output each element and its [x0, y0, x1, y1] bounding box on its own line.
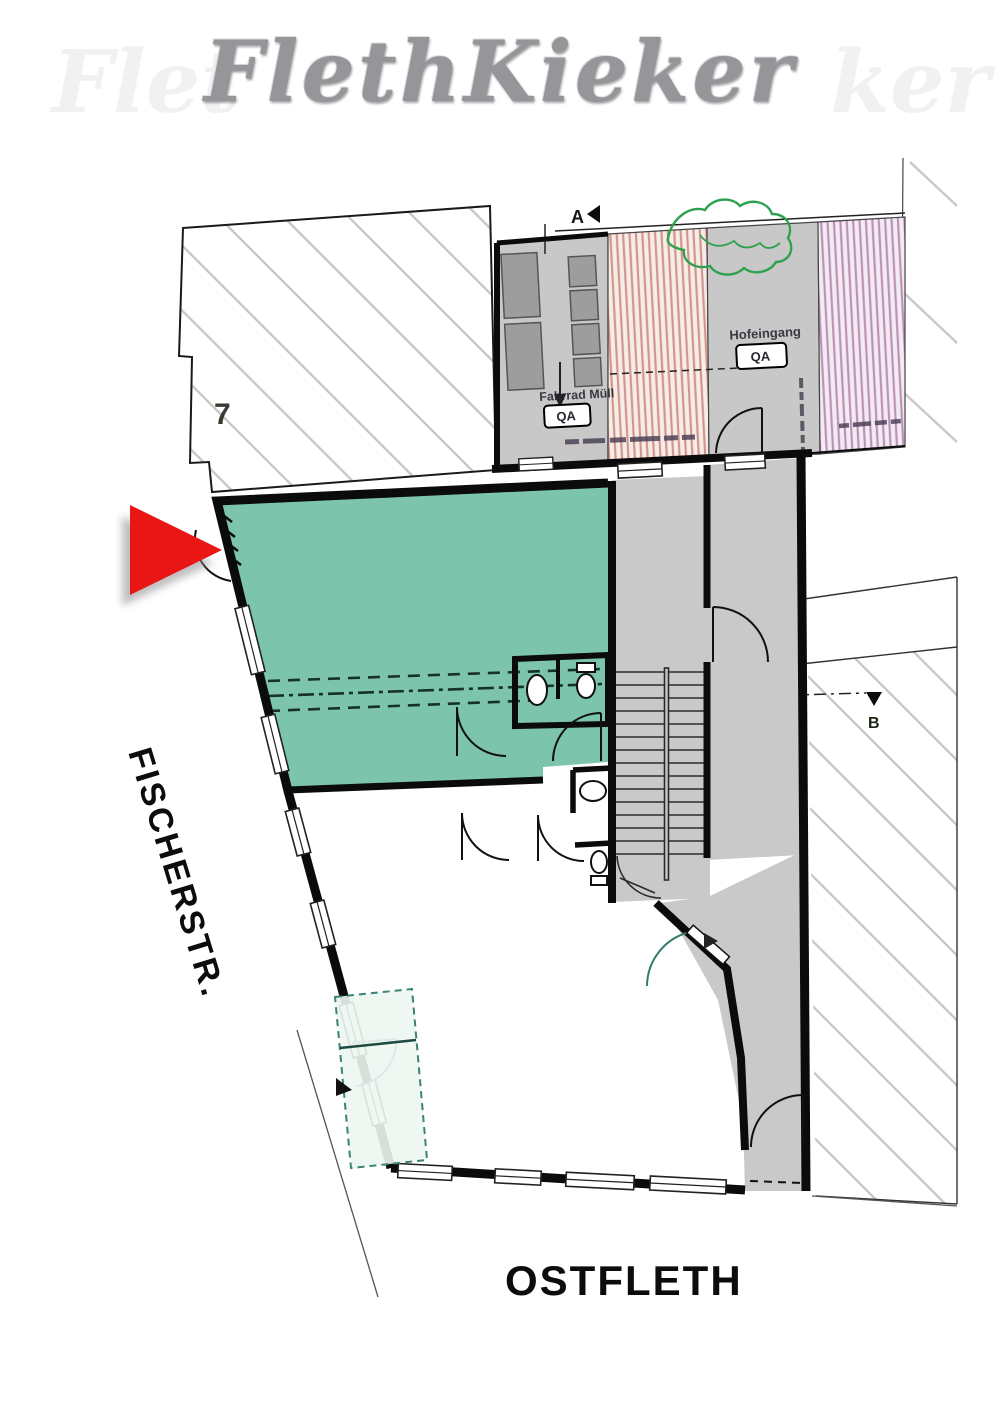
corridor-right: [707, 458, 801, 860]
floor-plan-page: Flet ker FlethKieker 7: [0, 0, 1000, 1414]
lower-wc-door-left: [462, 813, 509, 860]
section-marker-a-triangle-icon: [587, 205, 600, 223]
terrace-pink-striped: [608, 228, 709, 462]
neighbor-parcel-right: [797, 577, 957, 1204]
street-label-ostfleth: OSTFLETH: [505, 1257, 743, 1304]
diagonal-door-arc: [647, 932, 690, 986]
section-marker-a-label: A: [571, 207, 584, 227]
street-label-fischerstr: FISCHERSTR.: [120, 743, 232, 1002]
locator-arrow: [122, 505, 222, 606]
vestibule: [335, 989, 427, 1168]
terrace-purple-striped: [818, 217, 905, 454]
toilet-lower-wc: [591, 851, 607, 885]
lower-wc-door-right: [538, 815, 584, 861]
sink-upper-wc: [527, 675, 547, 705]
bike-area-tag: QA: [556, 408, 577, 424]
section-marker-b-label: B: [868, 715, 880, 732]
courtyard-entrance-tag: QA: [750, 348, 771, 364]
house-number: 7: [214, 398, 231, 431]
neighbor-parcel-far-right: [901, 158, 957, 447]
corridor-left: [612, 476, 707, 652]
floor-plan-drawing: 7: [0, 0, 1000, 1414]
sink-lower-wc: [580, 781, 606, 801]
locator-arrow-icon: [130, 505, 222, 595]
neighbor-parcel-top-left: 7: [179, 206, 496, 492]
toilet-upper-wc: [577, 663, 595, 698]
